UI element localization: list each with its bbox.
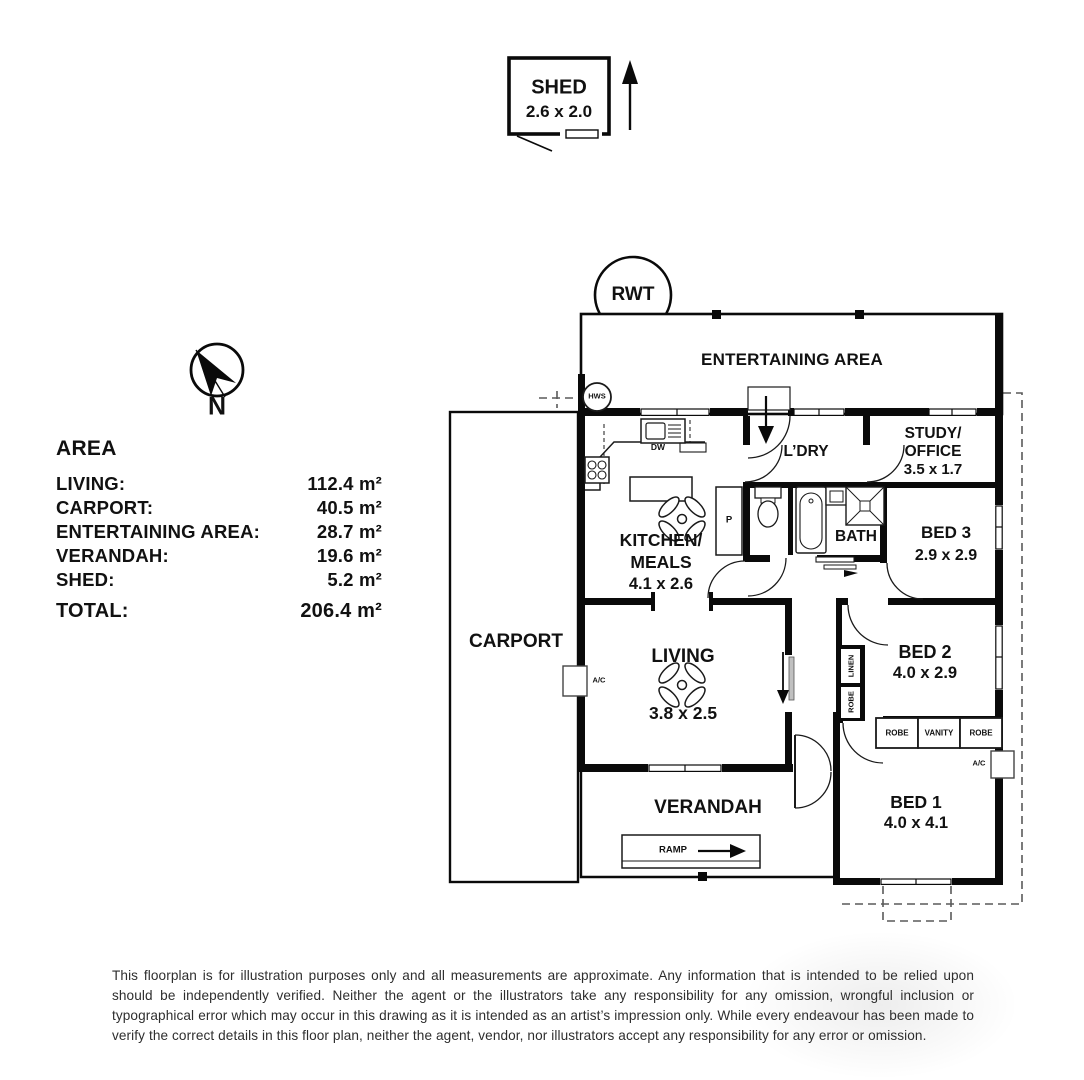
north-arrow — [622, 60, 638, 130]
rwt-label: RWT — [612, 284, 655, 306]
legend-label: VERANDAH: — [56, 544, 169, 568]
strip-vanity: VANITY — [925, 728, 954, 737]
towel-rail — [816, 557, 858, 577]
bed2-name: BED 2 — [893, 642, 957, 663]
legend-value: 40.5 m² — [317, 496, 382, 520]
legend-label: SHED: — [56, 568, 115, 592]
legend-value: 19.6 m² — [317, 544, 382, 568]
strip-robe-2: ROBE — [969, 728, 992, 737]
room-label-bed3: BED 3 2.9 x 2.9 — [915, 521, 977, 567]
bed1-dims: 4.0 x 4.1 — [884, 813, 948, 834]
room-label-ldry: L’DRY — [783, 443, 828, 461]
bed1-name: BED 1 — [884, 792, 948, 813]
room-label-verandah: VERANDAH — [654, 797, 762, 819]
bed3-name: BED 3 — [915, 521, 977, 544]
legend-value: 5.2 m² — [327, 568, 382, 592]
ramp-label: RAMP — [659, 846, 687, 857]
legend-label: ENTERTAINING AREA: — [56, 520, 260, 544]
legend-value: 206.4 m² — [300, 600, 382, 623]
bed3-dims: 2.9 x 2.9 — [915, 544, 977, 567]
legend-row-carport: CARPORT:40.5 m² — [56, 496, 382, 520]
room-label-carport: CARPORT — [469, 631, 563, 653]
legend-label: CARPORT: — [56, 496, 153, 520]
room-label-entertaining: ENTERTAINING AREA — [701, 350, 883, 370]
floorplan-page: SHED 2.6 x 2.0 RWT HWS N AREA LIVING:112… — [0, 0, 1084, 1080]
ramp — [622, 835, 760, 868]
study-dims: 3.5 x 1.7 — [904, 461, 962, 479]
legend-row-living: LIVING:112.4 m² — [56, 472, 382, 496]
ac-label-living: A/C — [593, 677, 606, 686]
disclaimer-text: This floorplan is for illustration purpo… — [112, 966, 974, 1046]
strip-robe-1: ROBE — [885, 728, 908, 737]
legend-row-shed: SHED:5.2 m² — [56, 568, 382, 592]
study-line2: OFFICE — [904, 443, 962, 461]
legend-value: 112.4 m² — [307, 472, 382, 496]
room-label-bed2: BED 2 4.0 x 2.9 — [893, 642, 957, 684]
ac-label-bed1: A/C — [973, 760, 986, 769]
area-legend: AREA LIVING:112.4 m² CARPORT:40.5 m² ENT… — [56, 437, 382, 623]
bed2-dims: 4.0 x 2.9 — [893, 663, 957, 684]
room-label-bath: BATH — [835, 528, 877, 546]
room-label-bed1: BED 1 4.0 x 4.1 — [884, 792, 948, 834]
shed-dims: 2.6 x 2.0 — [526, 102, 592, 122]
compass-north-label: N — [208, 393, 226, 422]
dishwasher-label: DW — [651, 443, 665, 453]
kitchen-line1: KITCHEN/ — [620, 529, 703, 551]
living-dims: 3.8 x 2.5 — [649, 703, 717, 723]
legend-value: 28.7 m² — [317, 520, 382, 544]
compass-icon — [191, 344, 243, 397]
legend-row-total: TOTAL:206.4 m² — [56, 600, 382, 623]
pantry-label: P — [726, 516, 732, 527]
legend-title: AREA — [56, 437, 382, 461]
legend-row-verandah: VERANDAH:19.6 m² — [56, 544, 382, 568]
room-label-kitchen: KITCHEN/ MEALS 4.1 x 2.6 — [620, 529, 703, 595]
room-label-study: STUDY/ OFFICE 3.5 x 1.7 — [904, 425, 962, 479]
robe-label-hall: ROBE — [847, 691, 856, 713]
legend-row-entertaining: ENTERTAINING AREA:28.7 m² — [56, 520, 382, 544]
study-line1: STUDY/ — [904, 425, 962, 443]
kitchen-line2: MEALS — [620, 551, 703, 573]
legend-label: TOTAL: — [56, 600, 129, 623]
sliding-door — [777, 652, 794, 704]
legend-label: LIVING: — [56, 472, 125, 496]
linen-label: LINEN — [847, 655, 856, 678]
room-label-living: LIVING — [651, 646, 714, 668]
kitchen-dims: 4.1 x 2.6 — [620, 573, 703, 595]
shed-label: SHED — [531, 77, 587, 100]
hws-label: HWS — [588, 393, 606, 402]
